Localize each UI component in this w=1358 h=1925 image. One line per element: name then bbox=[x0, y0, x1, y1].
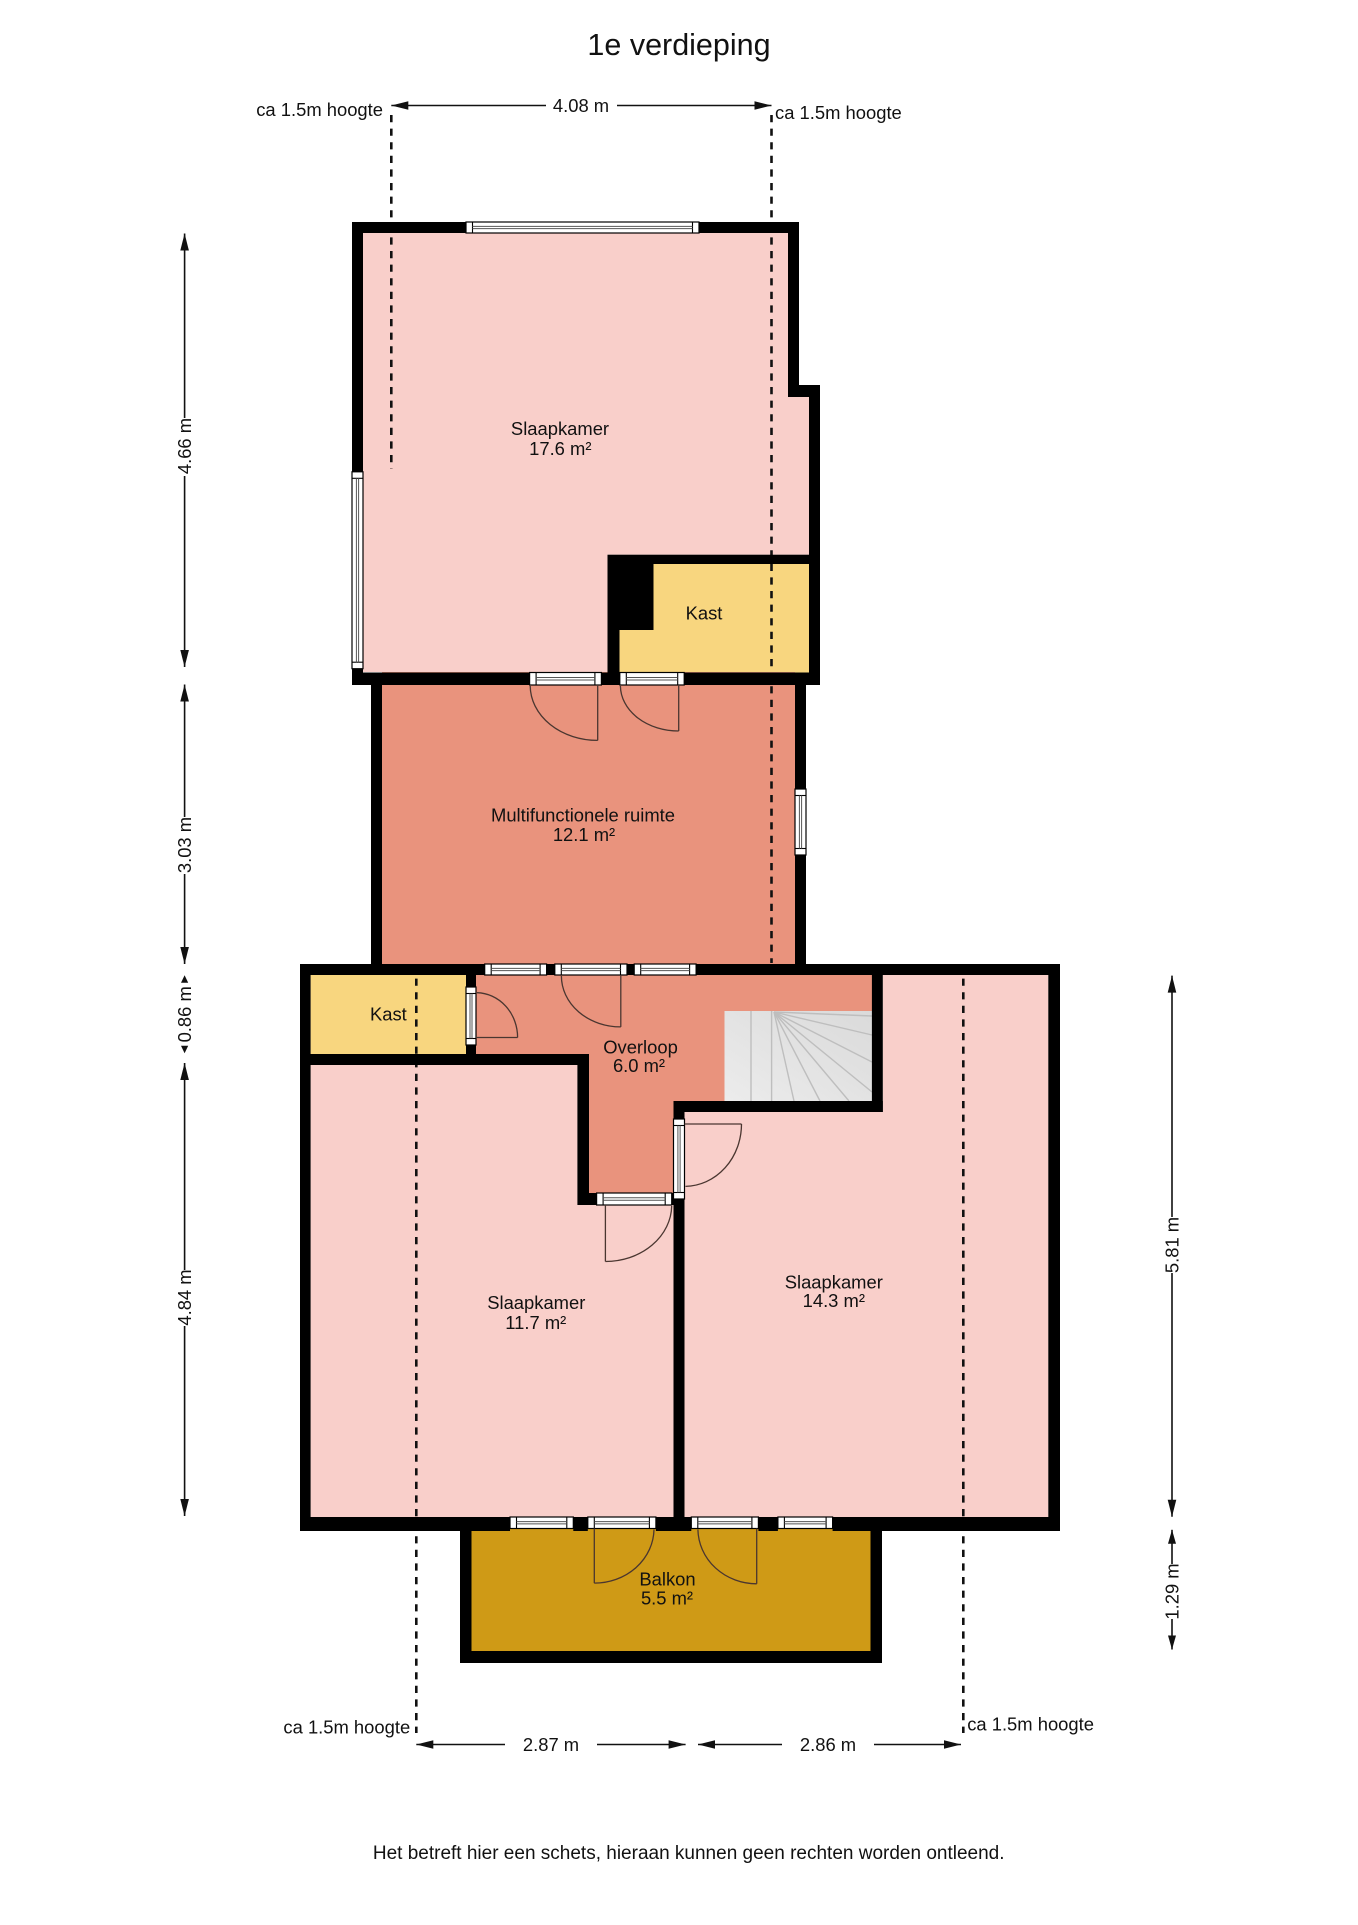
svg-text:ca 1.5m hoogte: ca 1.5m hoogte bbox=[967, 1713, 1094, 1734]
svg-text:6.0 m²: 6.0 m² bbox=[613, 1055, 665, 1076]
svg-text:5.5 m²: 5.5 m² bbox=[641, 1588, 693, 1609]
svg-text:4.84 m: 4.84 m bbox=[174, 1269, 195, 1325]
svg-text:0.86 m: 0.86 m bbox=[174, 986, 195, 1042]
svg-text:4.66 m: 4.66 m bbox=[174, 418, 195, 474]
svg-text:Het betreft hier een schets, h: Het betreft hier een schets, hieraan kun… bbox=[373, 1843, 1005, 1864]
svg-text:ca 1.5m hoogte: ca 1.5m hoogte bbox=[283, 1717, 410, 1738]
svg-text:11.7 m²: 11.7 m² bbox=[505, 1312, 566, 1333]
svg-text:14.3 m²: 14.3 m² bbox=[803, 1290, 865, 1311]
svg-text:17.6 m²: 17.6 m² bbox=[529, 438, 591, 459]
svg-text:Slaapkamer: Slaapkamer bbox=[487, 1292, 585, 1313]
svg-text:1e verdieping: 1e verdieping bbox=[587, 28, 770, 62]
svg-text:Slaapkamer: Slaapkamer bbox=[511, 418, 609, 439]
svg-text:Kast: Kast bbox=[370, 1004, 407, 1025]
svg-text:1.29 m: 1.29 m bbox=[1162, 1563, 1183, 1619]
svg-text:4.08 m: 4.08 m bbox=[553, 95, 609, 116]
svg-text:5.81 m: 5.81 m bbox=[1162, 1217, 1183, 1273]
svg-text:2.86 m: 2.86 m bbox=[800, 1734, 856, 1755]
svg-text:ca 1.5m hoogte: ca 1.5m hoogte bbox=[256, 99, 383, 120]
svg-text:ca 1.5m hoogte: ca 1.5m hoogte bbox=[775, 102, 902, 123]
svg-text:Balkon: Balkon bbox=[639, 1569, 695, 1590]
svg-text:2.87 m: 2.87 m bbox=[523, 1734, 579, 1755]
svg-text:12.1 m²: 12.1 m² bbox=[553, 824, 615, 845]
svg-text:Multifunctionele ruimte: Multifunctionele ruimte bbox=[491, 805, 675, 826]
svg-text:3.03 m: 3.03 m bbox=[174, 817, 195, 873]
svg-text:Kast: Kast bbox=[686, 603, 723, 624]
